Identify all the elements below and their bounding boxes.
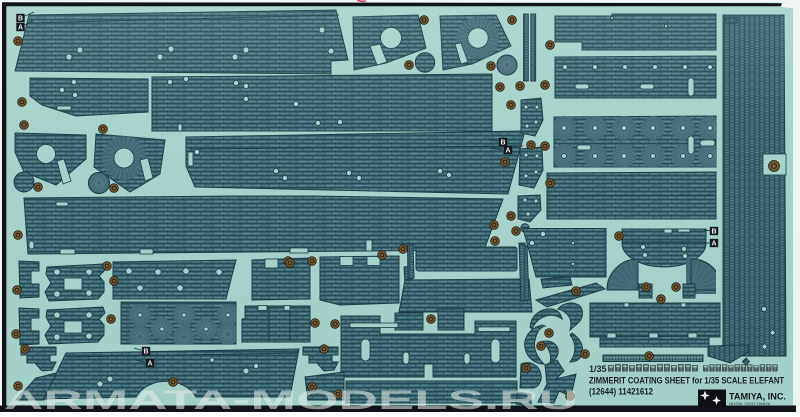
svg-text:A: A bbox=[505, 148, 510, 155]
svg-text:B: B bbox=[143, 349, 148, 356]
svg-text:TAMIYA, INC.: TAMIYA, INC. bbox=[729, 392, 786, 402]
svg-text:A: A bbox=[147, 361, 152, 368]
svg-text:B: B bbox=[18, 16, 23, 23]
svg-text:1/35: 1/35 bbox=[589, 364, 607, 374]
svg-text:ARMATA-MODELS.RU: ARMATA-MODELS.RU bbox=[4, 385, 578, 412]
svg-text:B: B bbox=[711, 229, 716, 236]
svg-text:ZIMMERIT COATING SHEET for 1/3: ZIMMERIT COATING SHEET for 1/35 SCALE EL… bbox=[589, 376, 785, 386]
svg-text:A: A bbox=[711, 241, 716, 248]
svg-text:08123H ©2012 TAMIYA: 08123H ©2012 TAMIYA bbox=[729, 402, 771, 406]
svg-text:B: B bbox=[500, 140, 505, 147]
svg-text:A: A bbox=[18, 25, 23, 32]
svg-text:(12644) 11421612: (12644) 11421612 bbox=[589, 387, 653, 397]
